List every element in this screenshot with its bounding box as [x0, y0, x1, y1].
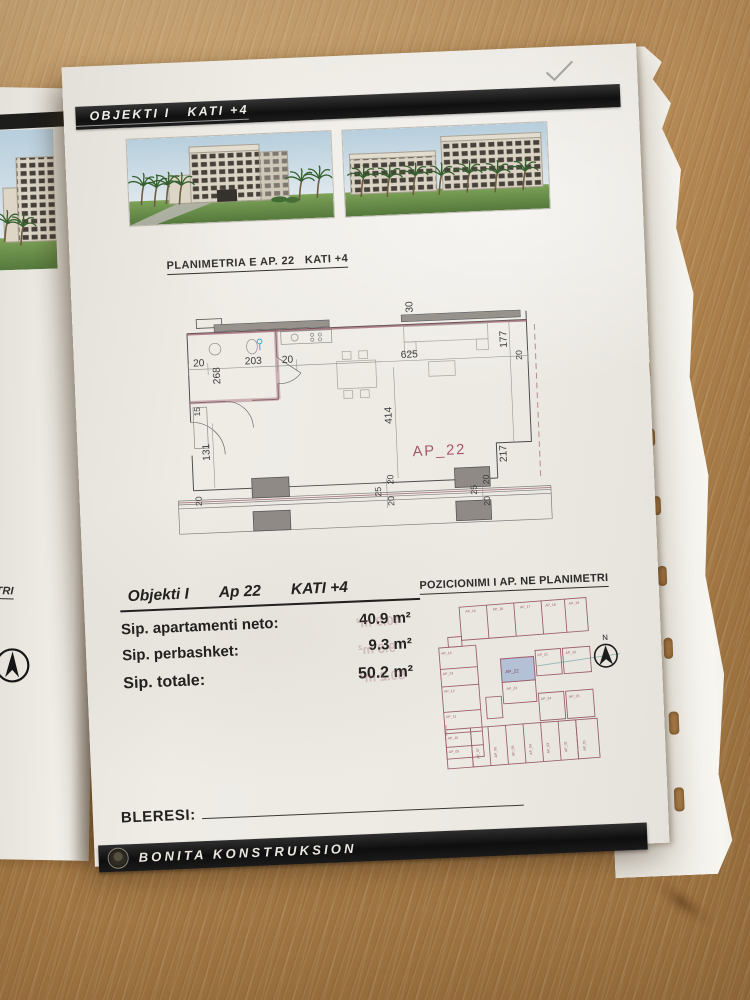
buyer-row: BLERESI:	[121, 785, 668, 827]
svg-text:AP_18: AP_18	[545, 603, 556, 608]
buyer-signature-line	[201, 791, 523, 819]
wall-fill	[190, 397, 279, 404]
keyplan-cells	[436, 597, 600, 769]
dim-label: 20	[193, 358, 205, 369]
dim-label: 625	[401, 349, 419, 361]
plan-furniture	[335, 323, 490, 399]
svg-text:AP_02: AP_02	[564, 741, 569, 752]
photo-scene: TRI OBJEKTI I KATI +4	[0, 0, 750, 1000]
info-label: Sip. totale:	[123, 672, 205, 693]
svg-text:AP_21: AP_21	[537, 652, 548, 657]
info-label: Sip. apartamenti neto:	[121, 615, 279, 639]
svg-text:N: N	[602, 633, 608, 642]
plan-doors	[188, 356, 304, 455]
key-plan-drawing: AP_15 AP_16 AP_17 AP_18 AP_19 AP_14 AP_1…	[420, 592, 641, 777]
catalog-page: OBJEKTI I KATI +4	[62, 43, 670, 866]
svg-text:AP_08: AP_08	[444, 725, 449, 736]
left-page-building-render-fragment	[0, 129, 58, 271]
dim-label: 131	[201, 443, 213, 461]
dim-label: 203	[245, 356, 263, 368]
svg-text:AP_01: AP_01	[582, 740, 587, 751]
left-page-text-fragment: TRI	[0, 585, 14, 599]
balcony-railing	[178, 486, 552, 535]
dim-label: 414	[383, 406, 395, 424]
building-render-2	[342, 122, 549, 216]
dim-label: 25	[469, 485, 479, 495]
bonita-crest-icon	[107, 847, 129, 869]
svg-text:AP_16: AP_16	[492, 607, 503, 612]
svg-text:AP_17: AP_17	[520, 605, 531, 610]
svg-text:AP_03: AP_03	[546, 743, 551, 754]
binder-hole	[657, 566, 667, 586]
left-page-compass-fragment	[0, 639, 41, 692]
info-objekti: Objekti I	[127, 586, 189, 607]
dim-label: 20	[385, 474, 395, 484]
buyer-label: BLERESI:	[121, 806, 196, 826]
apartment-label: AP_22	[412, 442, 466, 460]
dim-label: 217	[498, 444, 510, 462]
dim-label: 20	[194, 496, 204, 506]
svg-text:AP_11: AP_11	[446, 714, 457, 719]
position-plan-block: POZICIONIMI I AP. NE PLANIMETRI 40.9 m² …	[419, 567, 641, 777]
building-render-1	[127, 131, 334, 225]
svg-text:AP_19: AP_19	[569, 601, 580, 606]
dim-label: 15	[192, 407, 202, 417]
svg-text:AP_04: AP_04	[528, 744, 533, 755]
wood-knot	[646, 870, 720, 936]
binder-hole	[669, 711, 680, 734]
plan-walls	[186, 306, 533, 491]
page-footer-bar: BONITA KONSTRUKSION	[98, 823, 648, 873]
dim-label: 20	[482, 496, 492, 506]
svg-text:AP_15: AP_15	[465, 609, 476, 614]
plan-fixtures	[190, 330, 336, 449]
position-plan-title: POZICIONIMI I AP. NE PLANIMETRI	[419, 572, 608, 595]
info-apartment: Ap 22	[218, 583, 261, 603]
svg-text:AP_06: AP_06	[493, 747, 498, 758]
svg-text:AP_10: AP_10	[447, 736, 458, 741]
dim-label: 20	[282, 354, 294, 365]
svg-text:AP_23: AP_23	[506, 686, 517, 691]
ink-transfer-ghost: 40.9 m² 9.3 m² 50.2 m²	[355, 605, 421, 691]
info-and-position-row: Objekti I Ap 22 KATI +4 Sip. apartamenti…	[83, 566, 666, 791]
plan-title: PLANIMETRIA E AP. 22 KATI +4	[145, 241, 349, 285]
dim-label: 25	[373, 487, 383, 497]
info-floor: KATI +4	[291, 579, 349, 599]
svg-text:AP_12: AP_12	[444, 689, 455, 694]
highlighted-unit-label: AP_22	[505, 668, 519, 674]
floor-plan-drawing: 20 268 203 20 625 30 177 20 414 217 15 1…	[156, 292, 568, 553]
dim-label: 30	[404, 301, 415, 313]
svg-text:AP_25: AP_25	[569, 694, 580, 699]
binder-hole	[674, 787, 685, 811]
apartment-info-title: Objekti I Ap 22 KATI +4	[119, 576, 420, 613]
dim-label: 20	[514, 350, 524, 360]
railing-accent	[178, 487, 551, 503]
north-arrow-icon: N	[594, 633, 618, 668]
pencil-checkmark-icon	[545, 60, 576, 83]
building-renders	[127, 118, 643, 225]
svg-text:AP_20: AP_20	[565, 650, 576, 655]
dim-label: 20	[481, 474, 491, 484]
page-header-title: OBJEKTI I KATI +4	[75, 103, 249, 127]
svg-text:AP_07: AP_07	[476, 748, 481, 759]
dim-label: 268	[212, 367, 224, 385]
neighbor-wall-dashed	[534, 324, 540, 478]
info-label: Sip. perbashket:	[122, 642, 239, 664]
company-name: BONITA KONSTRUKSION	[138, 841, 357, 865]
dim-label: 20	[386, 496, 396, 506]
svg-text:AP_05: AP_05	[511, 745, 516, 756]
binder-hole	[663, 638, 673, 659]
svg-text:AP_24: AP_24	[541, 696, 552, 701]
svg-text:AP_09: AP_09	[449, 749, 460, 754]
svg-text:AP_14: AP_14	[441, 651, 452, 656]
svg-text:AP_13: AP_13	[443, 671, 454, 676]
faucet-symbol	[257, 339, 262, 350]
dim-label: 177	[498, 330, 510, 348]
